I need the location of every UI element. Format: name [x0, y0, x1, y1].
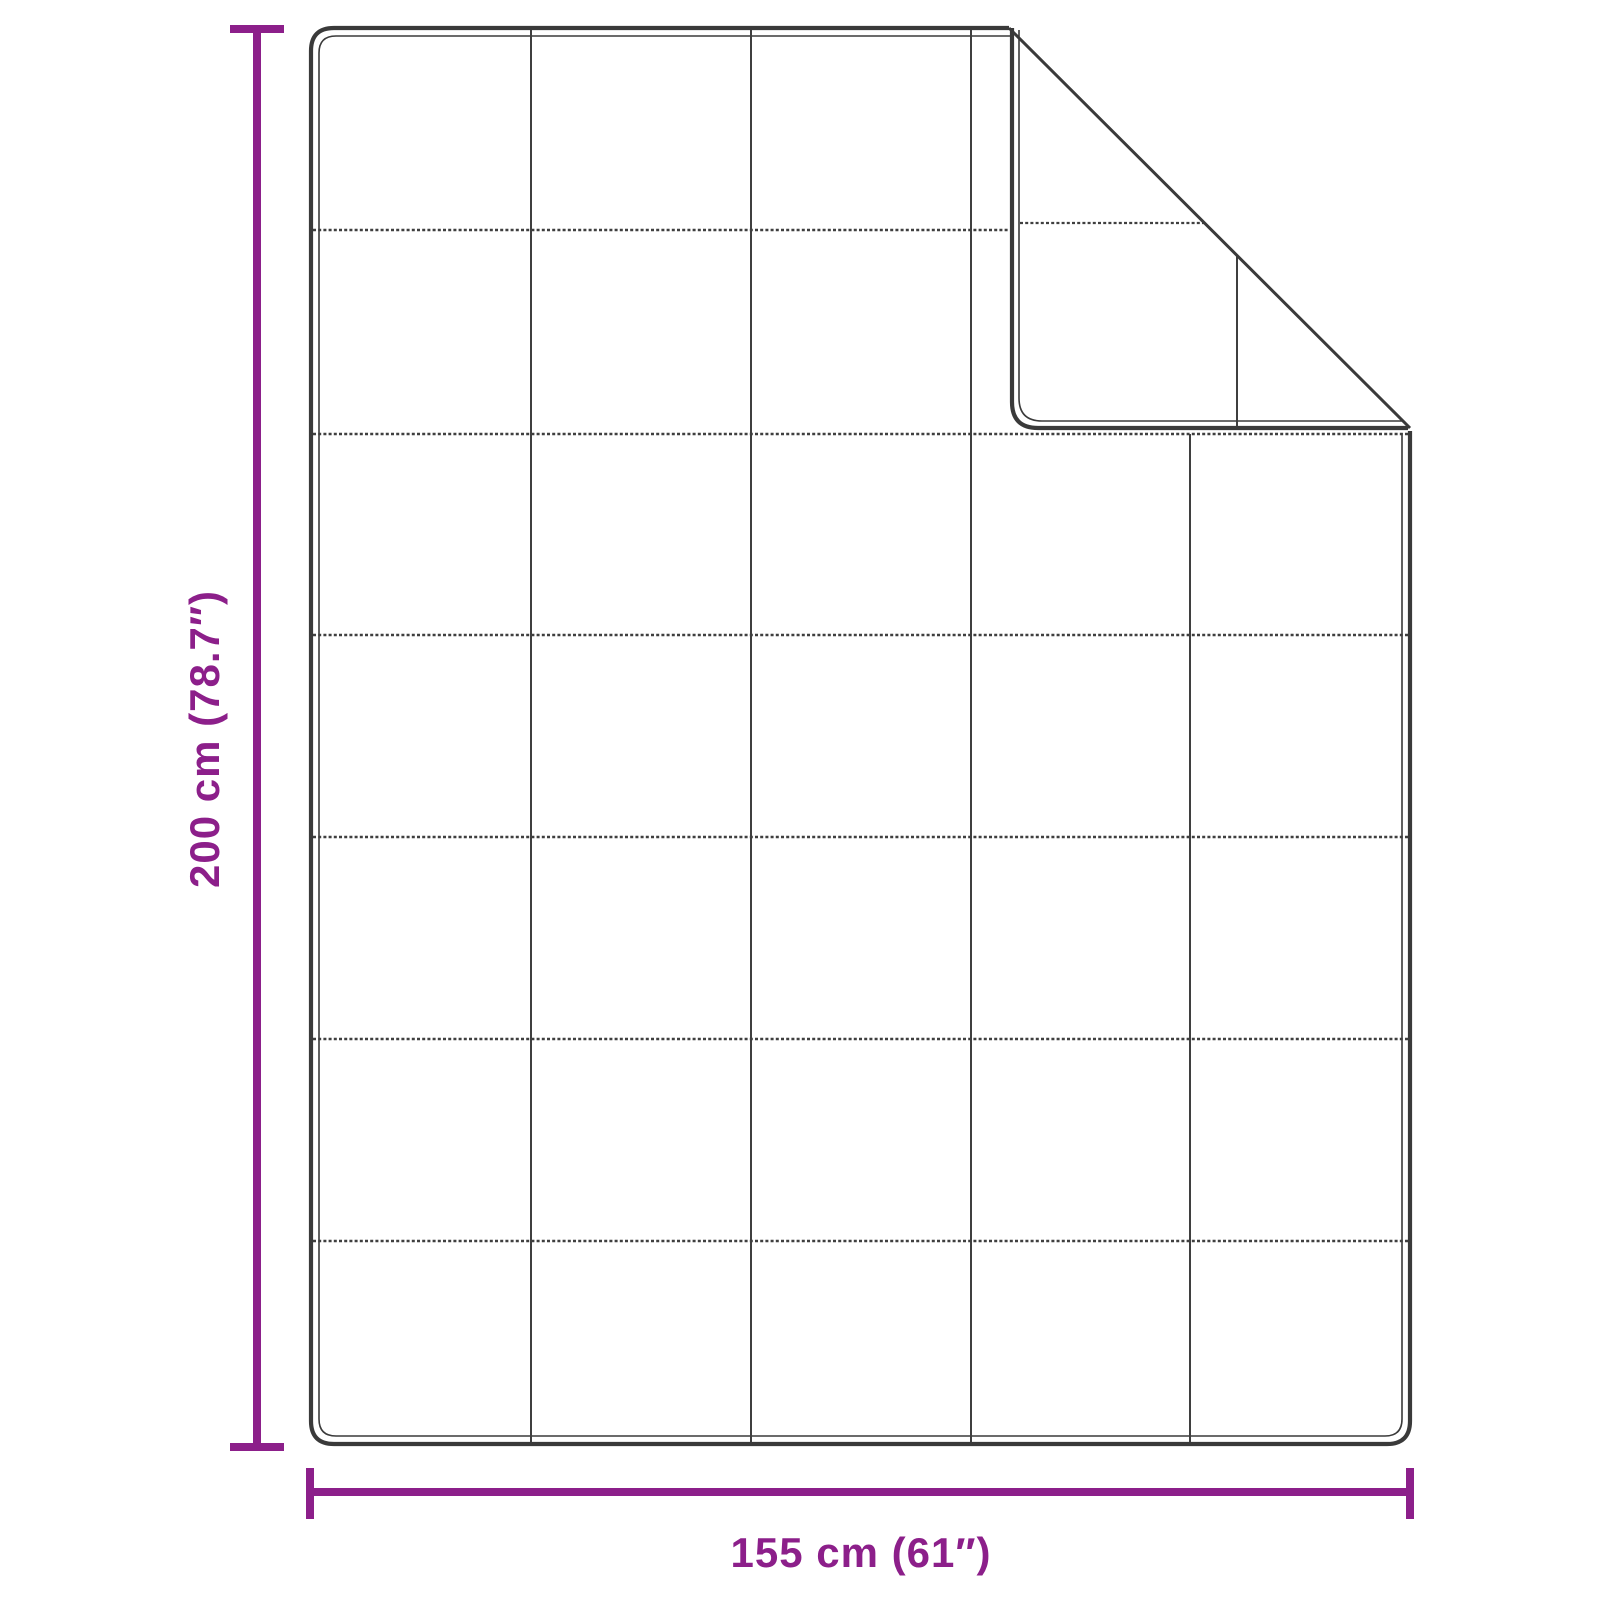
blanket-body — [311, 28, 1410, 1444]
width-dimension-label: 155 cm (61″) — [731, 1529, 992, 1576]
blanket-dimension-diagram: 200 cm (78.7″) 155 cm (61″) — [0, 0, 1600, 1600]
dimension-diagram-canvas: 200 cm (78.7″) 155 cm (61″) — [0, 0, 1600, 1600]
blanket-outline — [311, 28, 1410, 1444]
folded-corner — [1009, 28, 1410, 428]
height-dimension-label: 200 cm (78.7″) — [181, 590, 228, 888]
